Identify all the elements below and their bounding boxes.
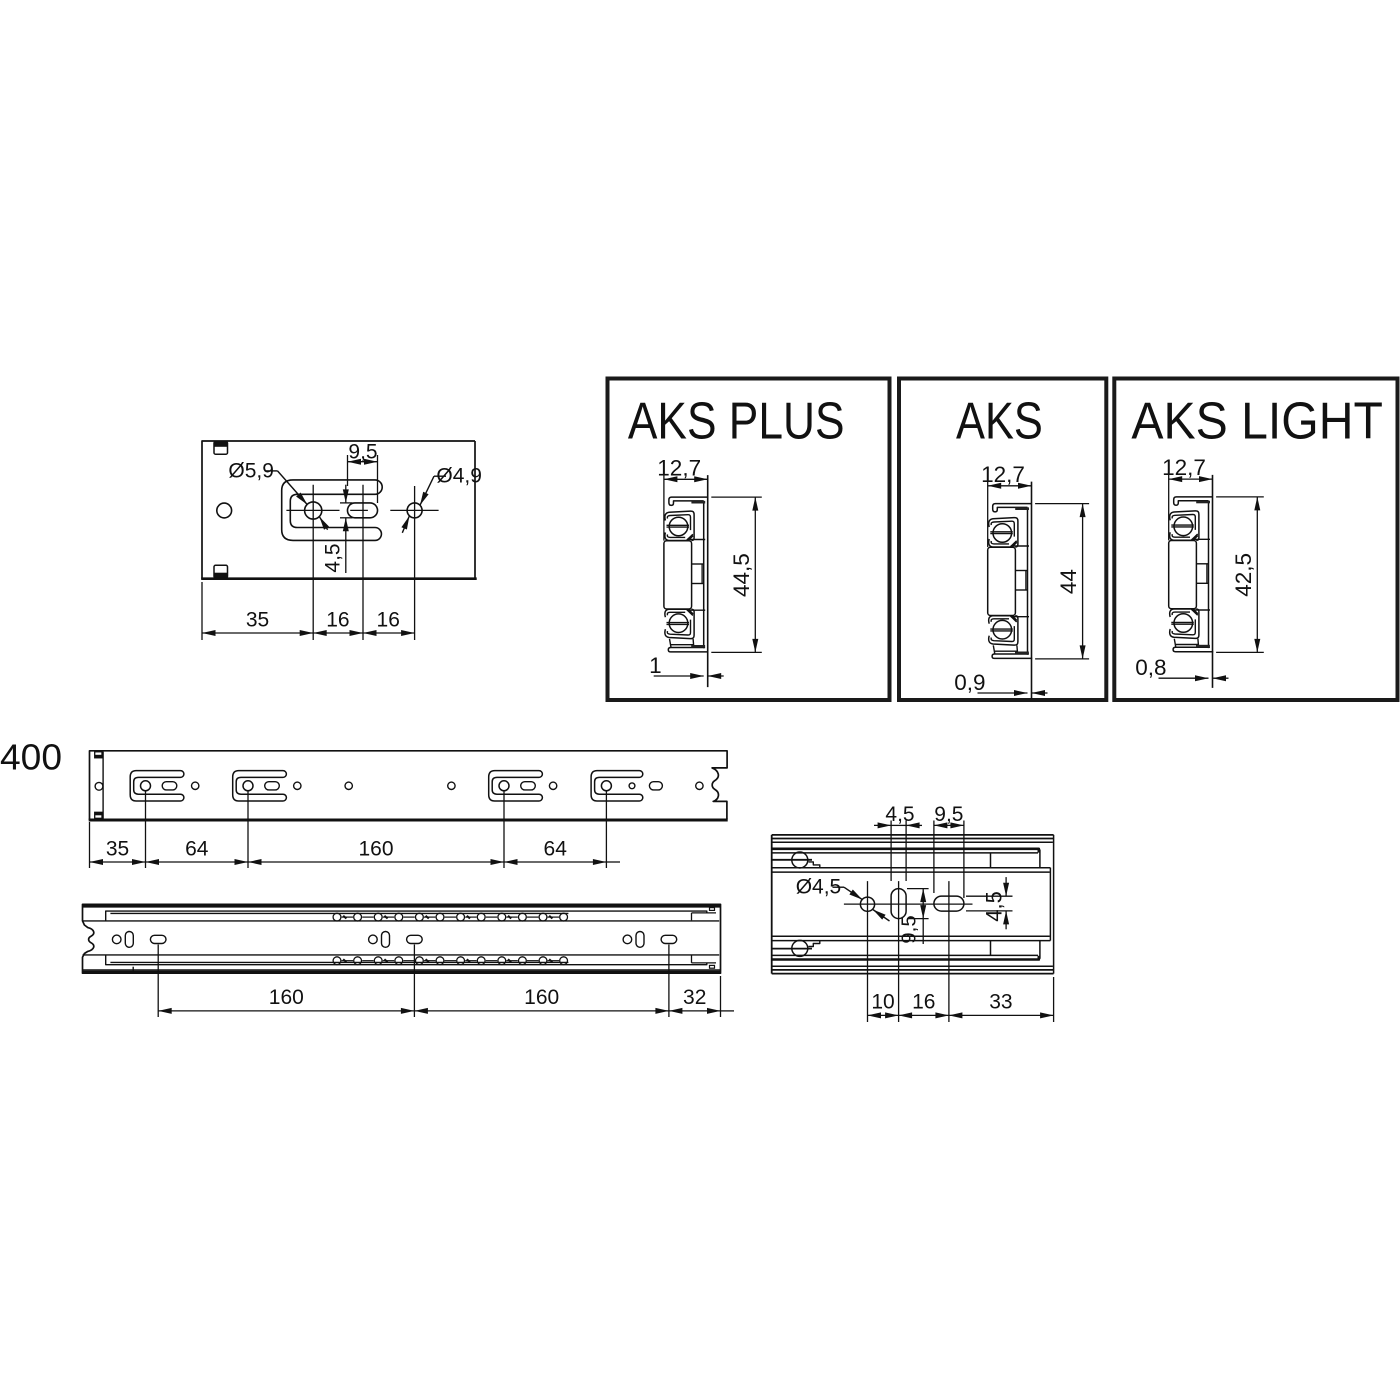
svg-text:12,7: 12,7 xyxy=(657,455,701,480)
svg-text:64: 64 xyxy=(185,837,209,860)
svg-text:9,5: 9,5 xyxy=(898,915,921,944)
svg-text:4,5: 4,5 xyxy=(885,803,914,826)
svg-text:44,5: 44,5 xyxy=(729,553,754,597)
svg-text:0,9: 0,9 xyxy=(954,670,985,695)
svg-text:160: 160 xyxy=(358,837,393,860)
svg-text:16: 16 xyxy=(326,608,349,631)
svg-text:16: 16 xyxy=(377,608,400,631)
svg-text:400: 400 xyxy=(0,736,62,777)
svg-text:9,5: 9,5 xyxy=(934,803,963,826)
svg-text:35: 35 xyxy=(106,837,129,860)
svg-text:160: 160 xyxy=(524,986,559,1009)
svg-text:160: 160 xyxy=(269,986,304,1009)
svg-text:32: 32 xyxy=(683,986,706,1009)
svg-text:1: 1 xyxy=(649,653,662,678)
svg-text:33: 33 xyxy=(989,991,1012,1014)
svg-text:9,5: 9,5 xyxy=(348,440,377,463)
svg-text:16: 16 xyxy=(912,991,935,1014)
svg-text:AKS: AKS xyxy=(956,393,1043,451)
svg-text:44: 44 xyxy=(1056,569,1081,594)
svg-text:12,7: 12,7 xyxy=(981,462,1025,487)
svg-text:0,8: 0,8 xyxy=(1135,655,1166,680)
svg-text:35: 35 xyxy=(246,608,269,631)
svg-text:10: 10 xyxy=(871,991,894,1014)
svg-text:4,5: 4,5 xyxy=(321,543,344,572)
svg-text:12,7: 12,7 xyxy=(1162,455,1206,480)
svg-text:42,5: 42,5 xyxy=(1231,553,1256,597)
svg-text:4,5: 4,5 xyxy=(982,891,1007,922)
svg-text:64: 64 xyxy=(544,837,568,860)
svg-text:AKS LIGHT: AKS LIGHT xyxy=(1131,393,1383,451)
svg-text:AKS PLUS: AKS PLUS xyxy=(628,393,845,451)
